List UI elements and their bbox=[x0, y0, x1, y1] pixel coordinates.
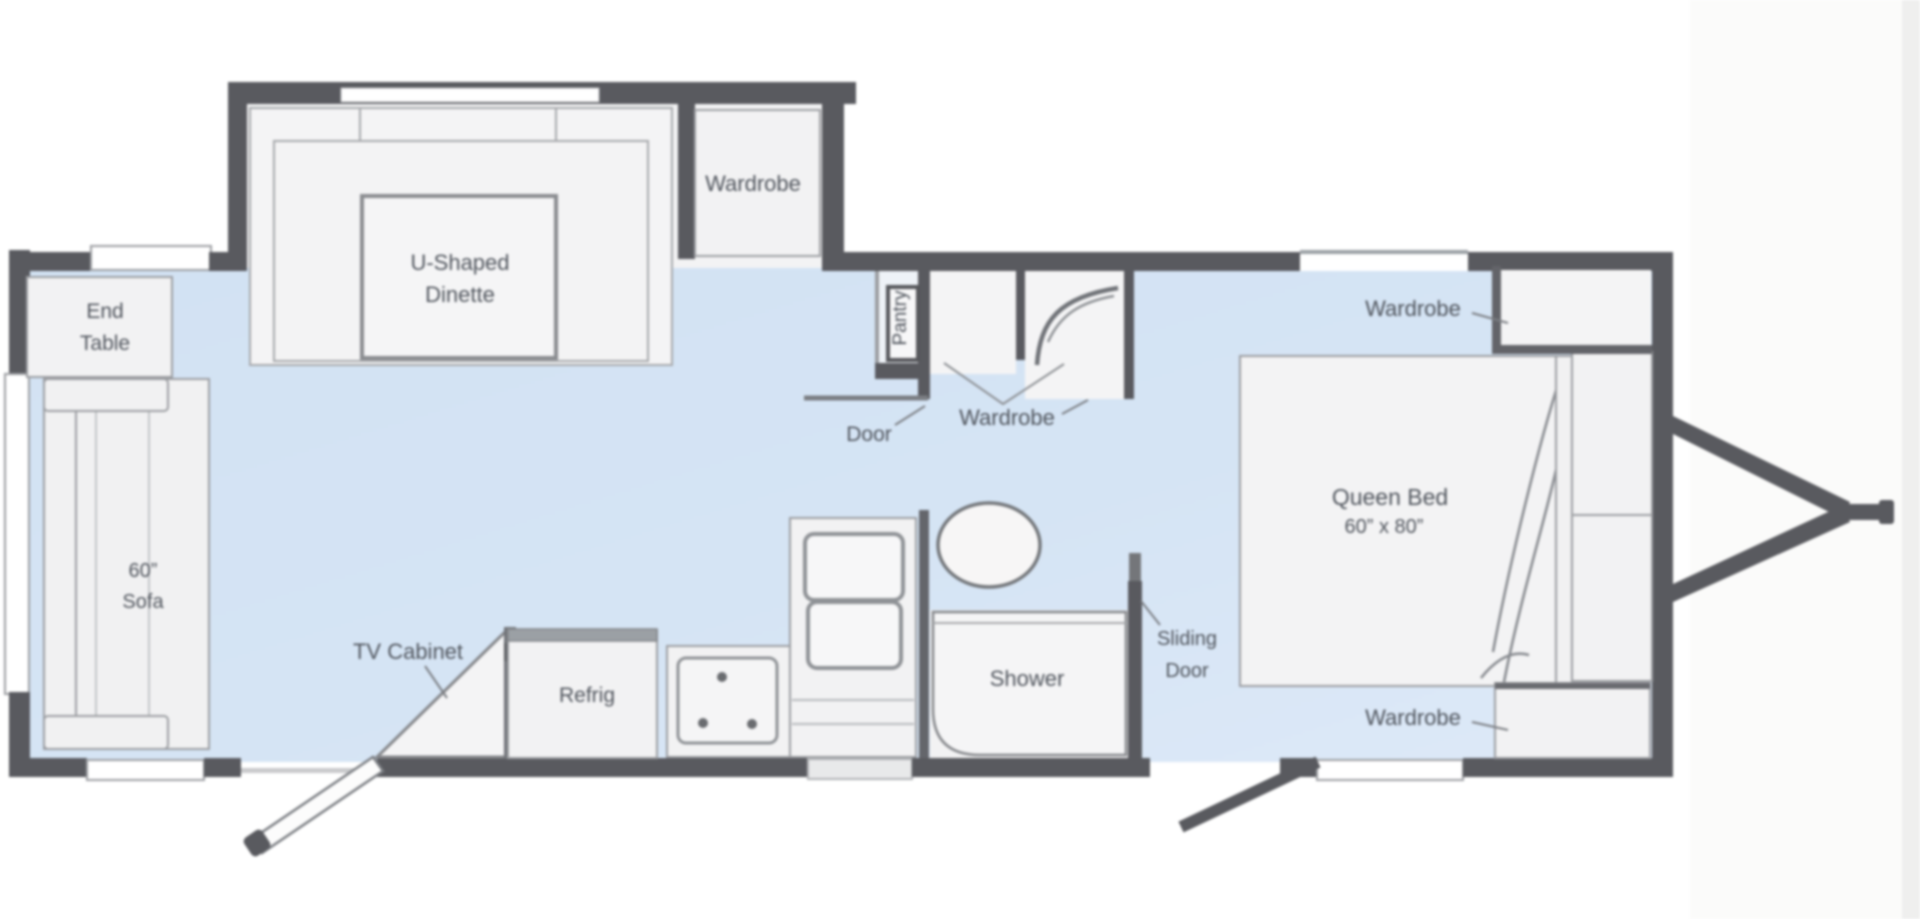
svg-text:60”: 60” bbox=[129, 560, 158, 582]
svg-text:Wardrobe: Wardrobe bbox=[705, 171, 801, 196]
svg-text:Shower: Shower bbox=[990, 666, 1065, 691]
svg-text:Dinette: Dinette bbox=[425, 282, 495, 307]
svg-text:60” x 80”: 60” x 80” bbox=[1345, 516, 1424, 538]
svg-text:Refrig: Refrig bbox=[559, 684, 615, 707]
svg-text:Sofa: Sofa bbox=[122, 591, 164, 613]
svg-text:Wardrobe: Wardrobe bbox=[959, 405, 1055, 430]
svg-text:End: End bbox=[86, 300, 123, 323]
svg-text:Door: Door bbox=[846, 423, 892, 446]
svg-text:TV Cabinet: TV Cabinet bbox=[353, 639, 463, 664]
svg-text:Sliding: Sliding bbox=[1157, 628, 1217, 650]
svg-text:Wardrobe: Wardrobe bbox=[1365, 705, 1461, 730]
svg-text:Wardrobe: Wardrobe bbox=[1365, 296, 1461, 321]
svg-text:U-Shaped: U-Shaped bbox=[410, 250, 509, 275]
svg-text:Table: Table bbox=[80, 332, 130, 355]
svg-text:Door: Door bbox=[1165, 660, 1209, 682]
svg-text:Pantry: Pantry bbox=[890, 290, 911, 345]
svg-text:Queen Bed: Queen Bed bbox=[1332, 484, 1448, 510]
